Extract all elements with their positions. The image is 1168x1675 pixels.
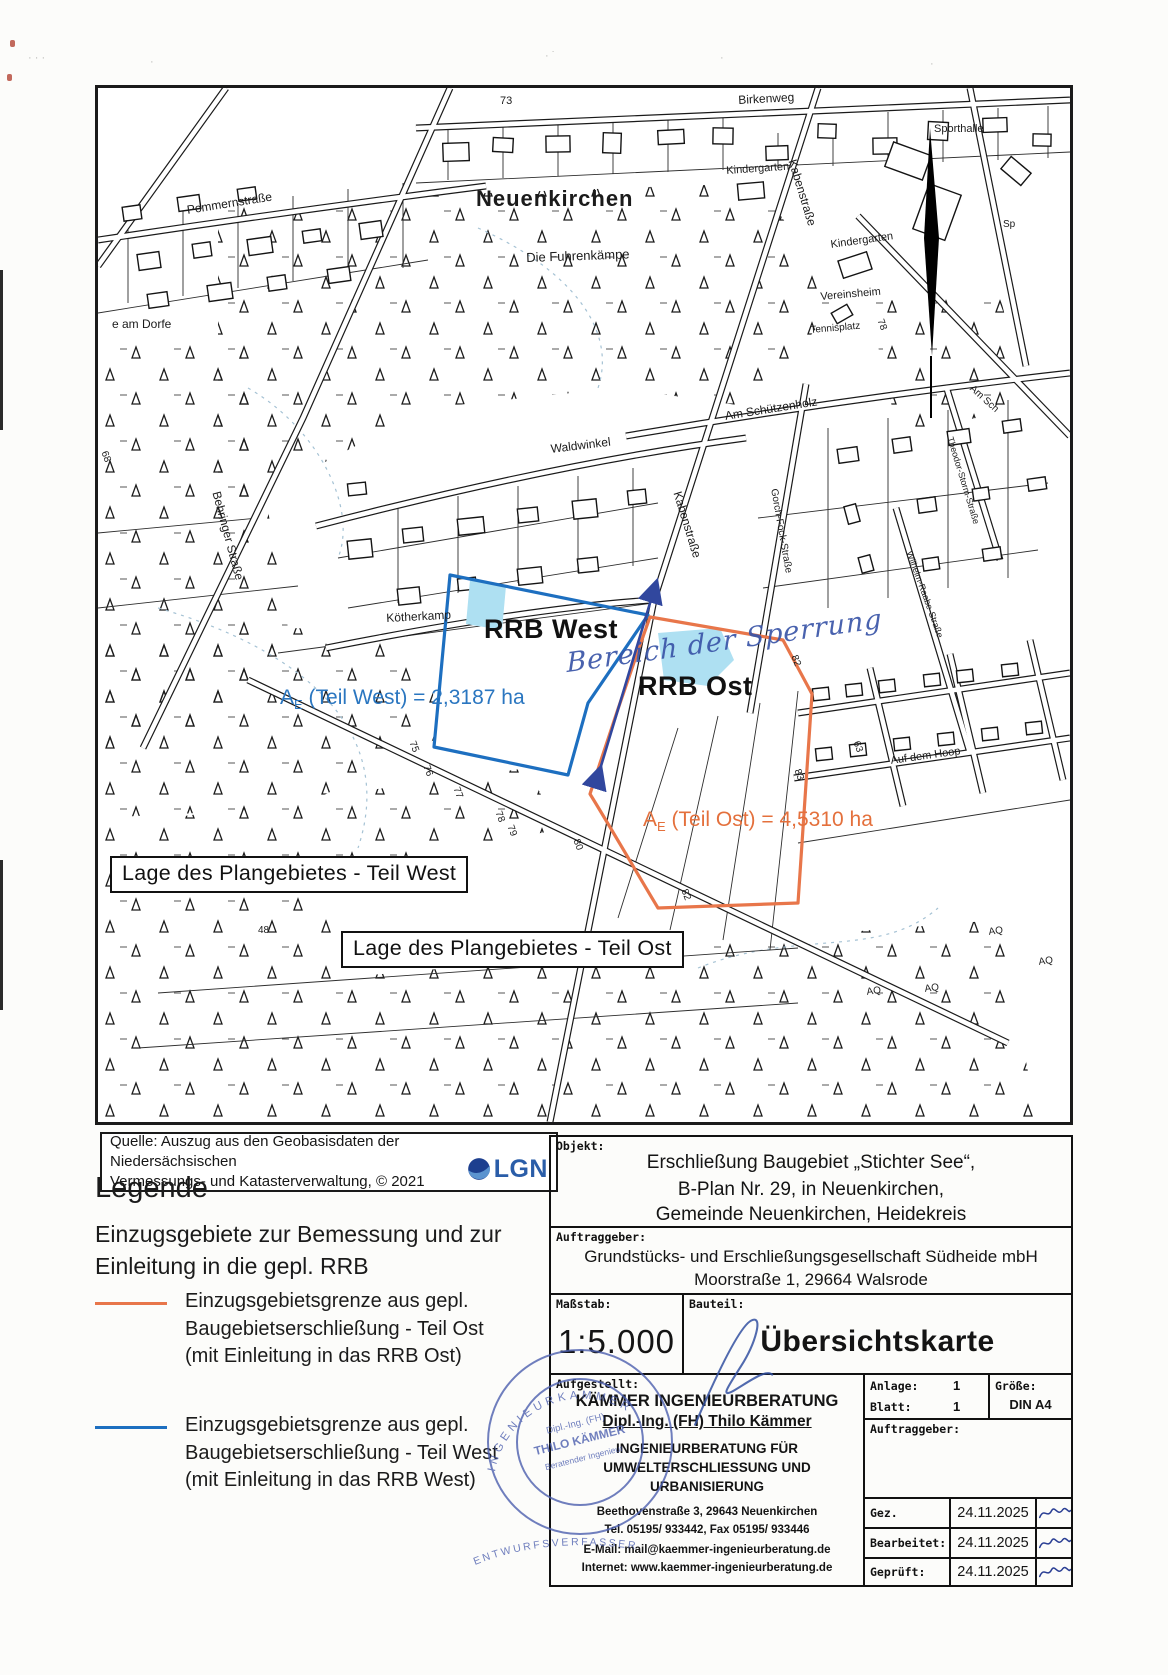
legend-swatch-ost <box>95 1302 167 1305</box>
lgn-logo-text: LGN <box>494 1155 548 1184</box>
map-label: e am Dorfe <box>112 318 171 330</box>
scan-artifact <box>7 74 12 81</box>
legend-ost-line3: (mit Einleitung in das RRB Ost) <box>185 1343 484 1371</box>
massstab-label: Maßstab: <box>556 1297 611 1311</box>
legend-west-line3: (mit Einleitung in das RRB West) <box>185 1467 498 1495</box>
scan-artifact <box>0 270 3 430</box>
geprueft-date: 24.11.2025 <box>951 1564 1035 1580</box>
stamp-role-text: ENTWURFSVERFASSER <box>472 1536 639 1568</box>
blatt-label: Blatt: <box>870 1400 912 1414</box>
scan-artifact <box>0 860 3 1010</box>
auftraggeber-line2: Moorstraße 1, 29664 Walsrode <box>551 1268 1071 1291</box>
map-label: Kötherkamp <box>386 609 451 624</box>
legend-ost-line1: Einzugsgebietsgrenze aus gepl. <box>185 1288 484 1316</box>
titleblock-auftraggeber2-cell: Auftraggeber: <box>863 1418 1073 1499</box>
legend-intro-line1: Einzugsgebiete zur Bemessung und zur <box>95 1218 502 1250</box>
bearbeitet-signature-cell <box>1035 1527 1073 1559</box>
plan-area-box-west: Lage des Plangebietes - Teil West <box>110 856 468 893</box>
legend-swatch-west <box>95 1426 167 1429</box>
area-west-value: (Teil West) = 2,3187 ha <box>303 686 525 709</box>
lgn-logo: LGN <box>466 1155 548 1184</box>
scan-artifact <box>10 40 15 47</box>
auftraggeber-label: Auftraggeber: <box>556 1230 646 1244</box>
scan-artifact: · <box>720 52 724 64</box>
rrb-west-label: RRB West <box>484 614 618 645</box>
scan-artifact: · <box>930 58 934 70</box>
map-label: Die Fuhrenkämpe <box>526 247 630 264</box>
scan-artifact: · <box>150 56 154 68</box>
source-line1: Quelle: Auszug aus den Geobasisdaten der… <box>110 1132 462 1173</box>
legend-west-line2: Baugebietserschließung - Teil West <box>185 1440 498 1468</box>
engineer-stamp: INGENIEURKAMMER Dipl.-Ing. (FH) THILO KÄ… <box>455 1330 705 1585</box>
lgn-globe-icon <box>466 1156 492 1182</box>
gez-signature <box>1038 1502 1072 1526</box>
area-ost-subscript: E <box>657 819 666 834</box>
legend-intro-line2: Einleitung in die gepl. RRB <box>95 1250 502 1282</box>
scan-artifact: · · · <box>28 52 45 64</box>
map-label: Birkenweg <box>738 91 795 106</box>
geprueft-label: Geprüft: <box>870 1565 925 1579</box>
legend-intro: Einzugsgebiete zur Bemessung und zur Ein… <box>95 1218 502 1282</box>
auftraggeber-line1: Grundstücks- und Erschließungsgesellscha… <box>551 1245 1071 1268</box>
engineer-signature <box>678 1308 783 1433</box>
blatt-value: 1 <box>953 1399 960 1414</box>
map-label: 73 <box>500 96 512 107</box>
bearbeitet-label: Bearbeitet: <box>870 1536 946 1550</box>
gez-label: Gez. <box>870 1506 898 1520</box>
map-label: 48 <box>258 926 269 936</box>
gez-date-cell: 24.11.2025 <box>949 1497 1037 1529</box>
rrb-ost-label: RRB Ost <box>638 671 753 702</box>
town-label: Neuenkirchen <box>476 188 634 210</box>
legend-title: Legende <box>95 1172 208 1205</box>
bearbeitet-label-cell: Bearbeitet: <box>863 1527 951 1559</box>
bearbeitet-signature <box>1038 1532 1072 1556</box>
bearbeitet-date-cell: 24.11.2025 <box>949 1527 1037 1559</box>
map-label: AQ <box>866 986 882 998</box>
map-label: AQ <box>1038 956 1054 968</box>
gez-label-cell: Gez. <box>863 1497 951 1529</box>
legend-west-line1: Einzugsgebietsgrenze aus gepl. <box>185 1412 498 1440</box>
legend-ost-line2: Baugebietserschließung - Teil Ost <box>185 1316 484 1344</box>
auftraggeber2-label: Auftraggeber: <box>870 1422 960 1436</box>
titleblock-anlage-cell: Anlage: 1 Blatt: 1 <box>863 1373 990 1420</box>
scan-artifact: · ˙ <box>545 50 555 62</box>
area-ost-value: (Teil Ost) = 4,5310 ha <box>666 808 873 831</box>
svg-text:ENTWURFSVERFASSER: ENTWURFSVERFASSER <box>472 1536 639 1568</box>
groesse-label: Größe: <box>995 1379 1037 1393</box>
geprueft-date-cell: 24.11.2025 <box>949 1557 1037 1587</box>
objekt-line3: Gemeinde Neuenkirchen, Heidekreis <box>551 1201 1071 1228</box>
geprueft-signature <box>1038 1561 1072 1585</box>
objekt-line1: Erschließung Baugebiet „Stichter See“, <box>551 1149 1071 1176</box>
titleblock-auftraggeber-cell: Auftraggeber: Grundstücks- und Erschließ… <box>549 1226 1073 1295</box>
bearbeitet-date: 24.11.2025 <box>951 1535 1035 1551</box>
area-ost-label: AE (Teil Ost) = 4,5310 ha <box>643 808 873 834</box>
objekt-line2: B-Plan Nr. 29, in Neuenkirchen, <box>551 1176 1071 1203</box>
titleblock-objekt-cell: Objekt: Erschließung Baugebiet „Stichter… <box>549 1135 1073 1228</box>
anlage-value: 1 <box>953 1378 960 1393</box>
anlage-label: Anlage: <box>870 1379 918 1393</box>
area-west-subscript: E <box>294 697 303 712</box>
map-label: AQ <box>924 983 940 995</box>
map-label: AQ <box>988 926 1004 938</box>
plan-area-box-ost: Lage des Plangebietes - Teil Ost <box>341 931 684 968</box>
site-map: 73BirkenwegPommernstraßee am DorfeDie Fu… <box>95 85 1073 1125</box>
gez-signature-cell <box>1035 1497 1073 1529</box>
area-west-symbol: A <box>280 686 294 709</box>
geprueft-label-cell: Geprüft: <box>863 1557 951 1587</box>
geprueft-signature-cell <box>1035 1557 1073 1587</box>
gez-date: 24.11.2025 <box>951 1505 1035 1521</box>
area-ost-symbol: A <box>643 808 657 831</box>
scanned-plan-page: · · · · · ˙ · · <box>0 0 1168 1675</box>
groesse-value: DIN A4 <box>990 1397 1071 1412</box>
titleblock-groesse-cell: Größe: DIN A4 <box>988 1373 1073 1420</box>
map-label: Sp <box>1003 220 1015 230</box>
map-label: Sporthalle <box>934 124 984 135</box>
area-west-label: AE (Teil West) = 2,3187 ha <box>280 686 525 712</box>
